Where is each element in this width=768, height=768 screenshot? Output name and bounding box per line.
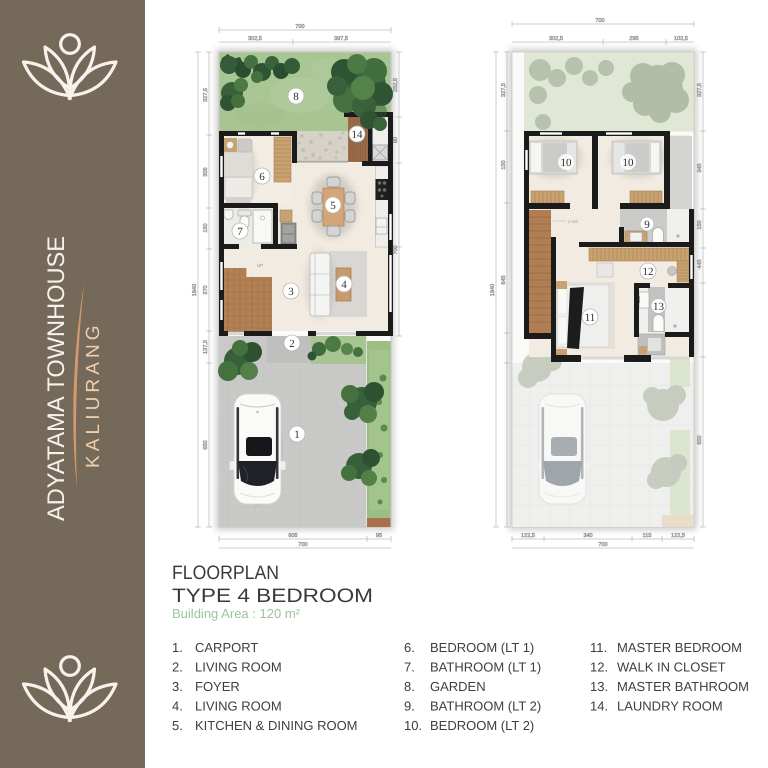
svg-text:9.: 9. [404, 699, 415, 714]
svg-text:327,5: 327,5 [697, 83, 703, 97]
svg-text:327,5: 327,5 [501, 83, 507, 97]
svg-text:700: 700 [598, 542, 607, 548]
svg-text:302,5: 302,5 [248, 36, 262, 42]
svg-text:645: 645 [501, 275, 507, 284]
svg-text:13.: 13. [590, 679, 608, 694]
svg-text:14.: 14. [590, 699, 608, 714]
svg-text:122,5: 122,5 [521, 533, 535, 539]
svg-text:605: 605 [288, 533, 297, 539]
svg-text:3: 3 [288, 286, 294, 298]
svg-text:2: 2 [289, 338, 295, 350]
svg-text:1: 1 [294, 429, 300, 441]
svg-text:150: 150 [501, 160, 507, 169]
svg-text:302,5: 302,5 [549, 36, 563, 42]
svg-text:MASTER BEDROOM: MASTER BEDROOM [617, 640, 742, 655]
svg-text:397,5: 397,5 [334, 36, 348, 42]
svg-text:4.: 4. [172, 699, 183, 714]
svg-text:2.050: 2.050 [568, 219, 579, 224]
svg-text:Building Area : 120 m²: Building Area : 120 m² [172, 606, 301, 621]
svg-text:8: 8 [293, 91, 299, 103]
svg-text:12: 12 [643, 266, 654, 278]
svg-text:UP: UP [257, 263, 263, 268]
svg-text:KALIURANG: KALIURANG [83, 322, 104, 468]
svg-text:137,5: 137,5 [203, 340, 209, 354]
svg-text:ADYATAMA TOWNHOUSE: ADYATAMA TOWNHOUSE [43, 236, 70, 521]
svg-text:700: 700 [393, 245, 399, 254]
svg-text:305: 305 [203, 167, 209, 176]
svg-text:700: 700 [295, 24, 304, 30]
svg-text:LAUNDRY ROOM: LAUNDRY ROOM [617, 699, 723, 714]
svg-text:80: 80 [393, 137, 399, 143]
svg-text:3.: 3. [172, 679, 183, 694]
svg-text:2.: 2. [172, 660, 183, 675]
svg-text:295: 295 [629, 36, 638, 42]
svg-text:5: 5 [330, 200, 336, 212]
svg-text:102,5: 102,5 [674, 36, 688, 42]
svg-text:650: 650 [203, 440, 209, 449]
svg-text:5.: 5. [172, 718, 183, 733]
svg-text:445: 445 [697, 259, 703, 268]
svg-text:6.: 6. [404, 640, 415, 655]
svg-text:LIVING ROOM: LIVING ROOM [195, 699, 282, 714]
svg-text:WALK IN CLOSET: WALK IN CLOSET [617, 660, 726, 675]
svg-text:150: 150 [697, 220, 703, 229]
svg-text:122,5: 122,5 [671, 533, 685, 539]
svg-text:9: 9 [644, 219, 650, 231]
svg-text:700: 700 [298, 542, 307, 548]
svg-text:GARDEN: GARDEN [430, 679, 486, 694]
svg-text:1940: 1940 [192, 284, 198, 296]
svg-text:327,5: 327,5 [203, 88, 209, 102]
svg-text:115: 115 [643, 533, 652, 539]
svg-text:370: 370 [203, 285, 209, 294]
svg-text:95: 95 [376, 533, 382, 539]
svg-text:BEDROOM (LT 2): BEDROOM (LT 2) [430, 718, 534, 733]
svg-text:10.: 10. [404, 718, 422, 733]
svg-text:700: 700 [595, 18, 604, 24]
svg-text:BATHROOM (LT 2): BATHROOM (LT 2) [430, 699, 541, 714]
svg-text:12.: 12. [590, 660, 608, 675]
svg-text:FLOORPLAN: FLOORPLAN [172, 562, 279, 584]
svg-text:14: 14 [352, 129, 364, 141]
svg-text:7.: 7. [404, 660, 415, 675]
svg-text:1.: 1. [172, 640, 183, 655]
svg-text:TYPE 4 BEDROOM: TYPE 4 BEDROOM [172, 585, 373, 607]
svg-text:CARPORT: CARPORT [195, 640, 258, 655]
svg-text:150: 150 [203, 223, 209, 232]
svg-text:650: 650 [697, 435, 703, 444]
svg-text:LIVING ROOM: LIVING ROOM [195, 660, 282, 675]
svg-text:MASTER BATHROOM: MASTER BATHROOM [617, 679, 749, 694]
svg-text:1940: 1940 [490, 284, 496, 296]
svg-text:6: 6 [259, 171, 265, 183]
svg-text:4: 4 [341, 279, 347, 291]
svg-text:7: 7 [237, 226, 243, 238]
svg-text:BATHROOM (LT 1): BATHROOM (LT 1) [430, 660, 541, 675]
svg-text:10: 10 [623, 157, 635, 169]
svg-text:FOYER: FOYER [195, 679, 240, 694]
svg-text:252,5: 252,5 [393, 78, 399, 92]
svg-text:10: 10 [561, 157, 573, 169]
svg-text:KITCHEN & DINING ROOM: KITCHEN & DINING ROOM [195, 718, 358, 733]
svg-text:BEDROOM (LT 1): BEDROOM (LT 1) [430, 640, 534, 655]
svg-text:13: 13 [653, 301, 665, 313]
svg-text:340: 340 [583, 533, 592, 539]
svg-text:11.: 11. [590, 640, 607, 655]
svg-text:8.: 8. [404, 679, 415, 694]
svg-text:345: 345 [697, 163, 703, 172]
svg-text:11: 11 [585, 312, 596, 324]
